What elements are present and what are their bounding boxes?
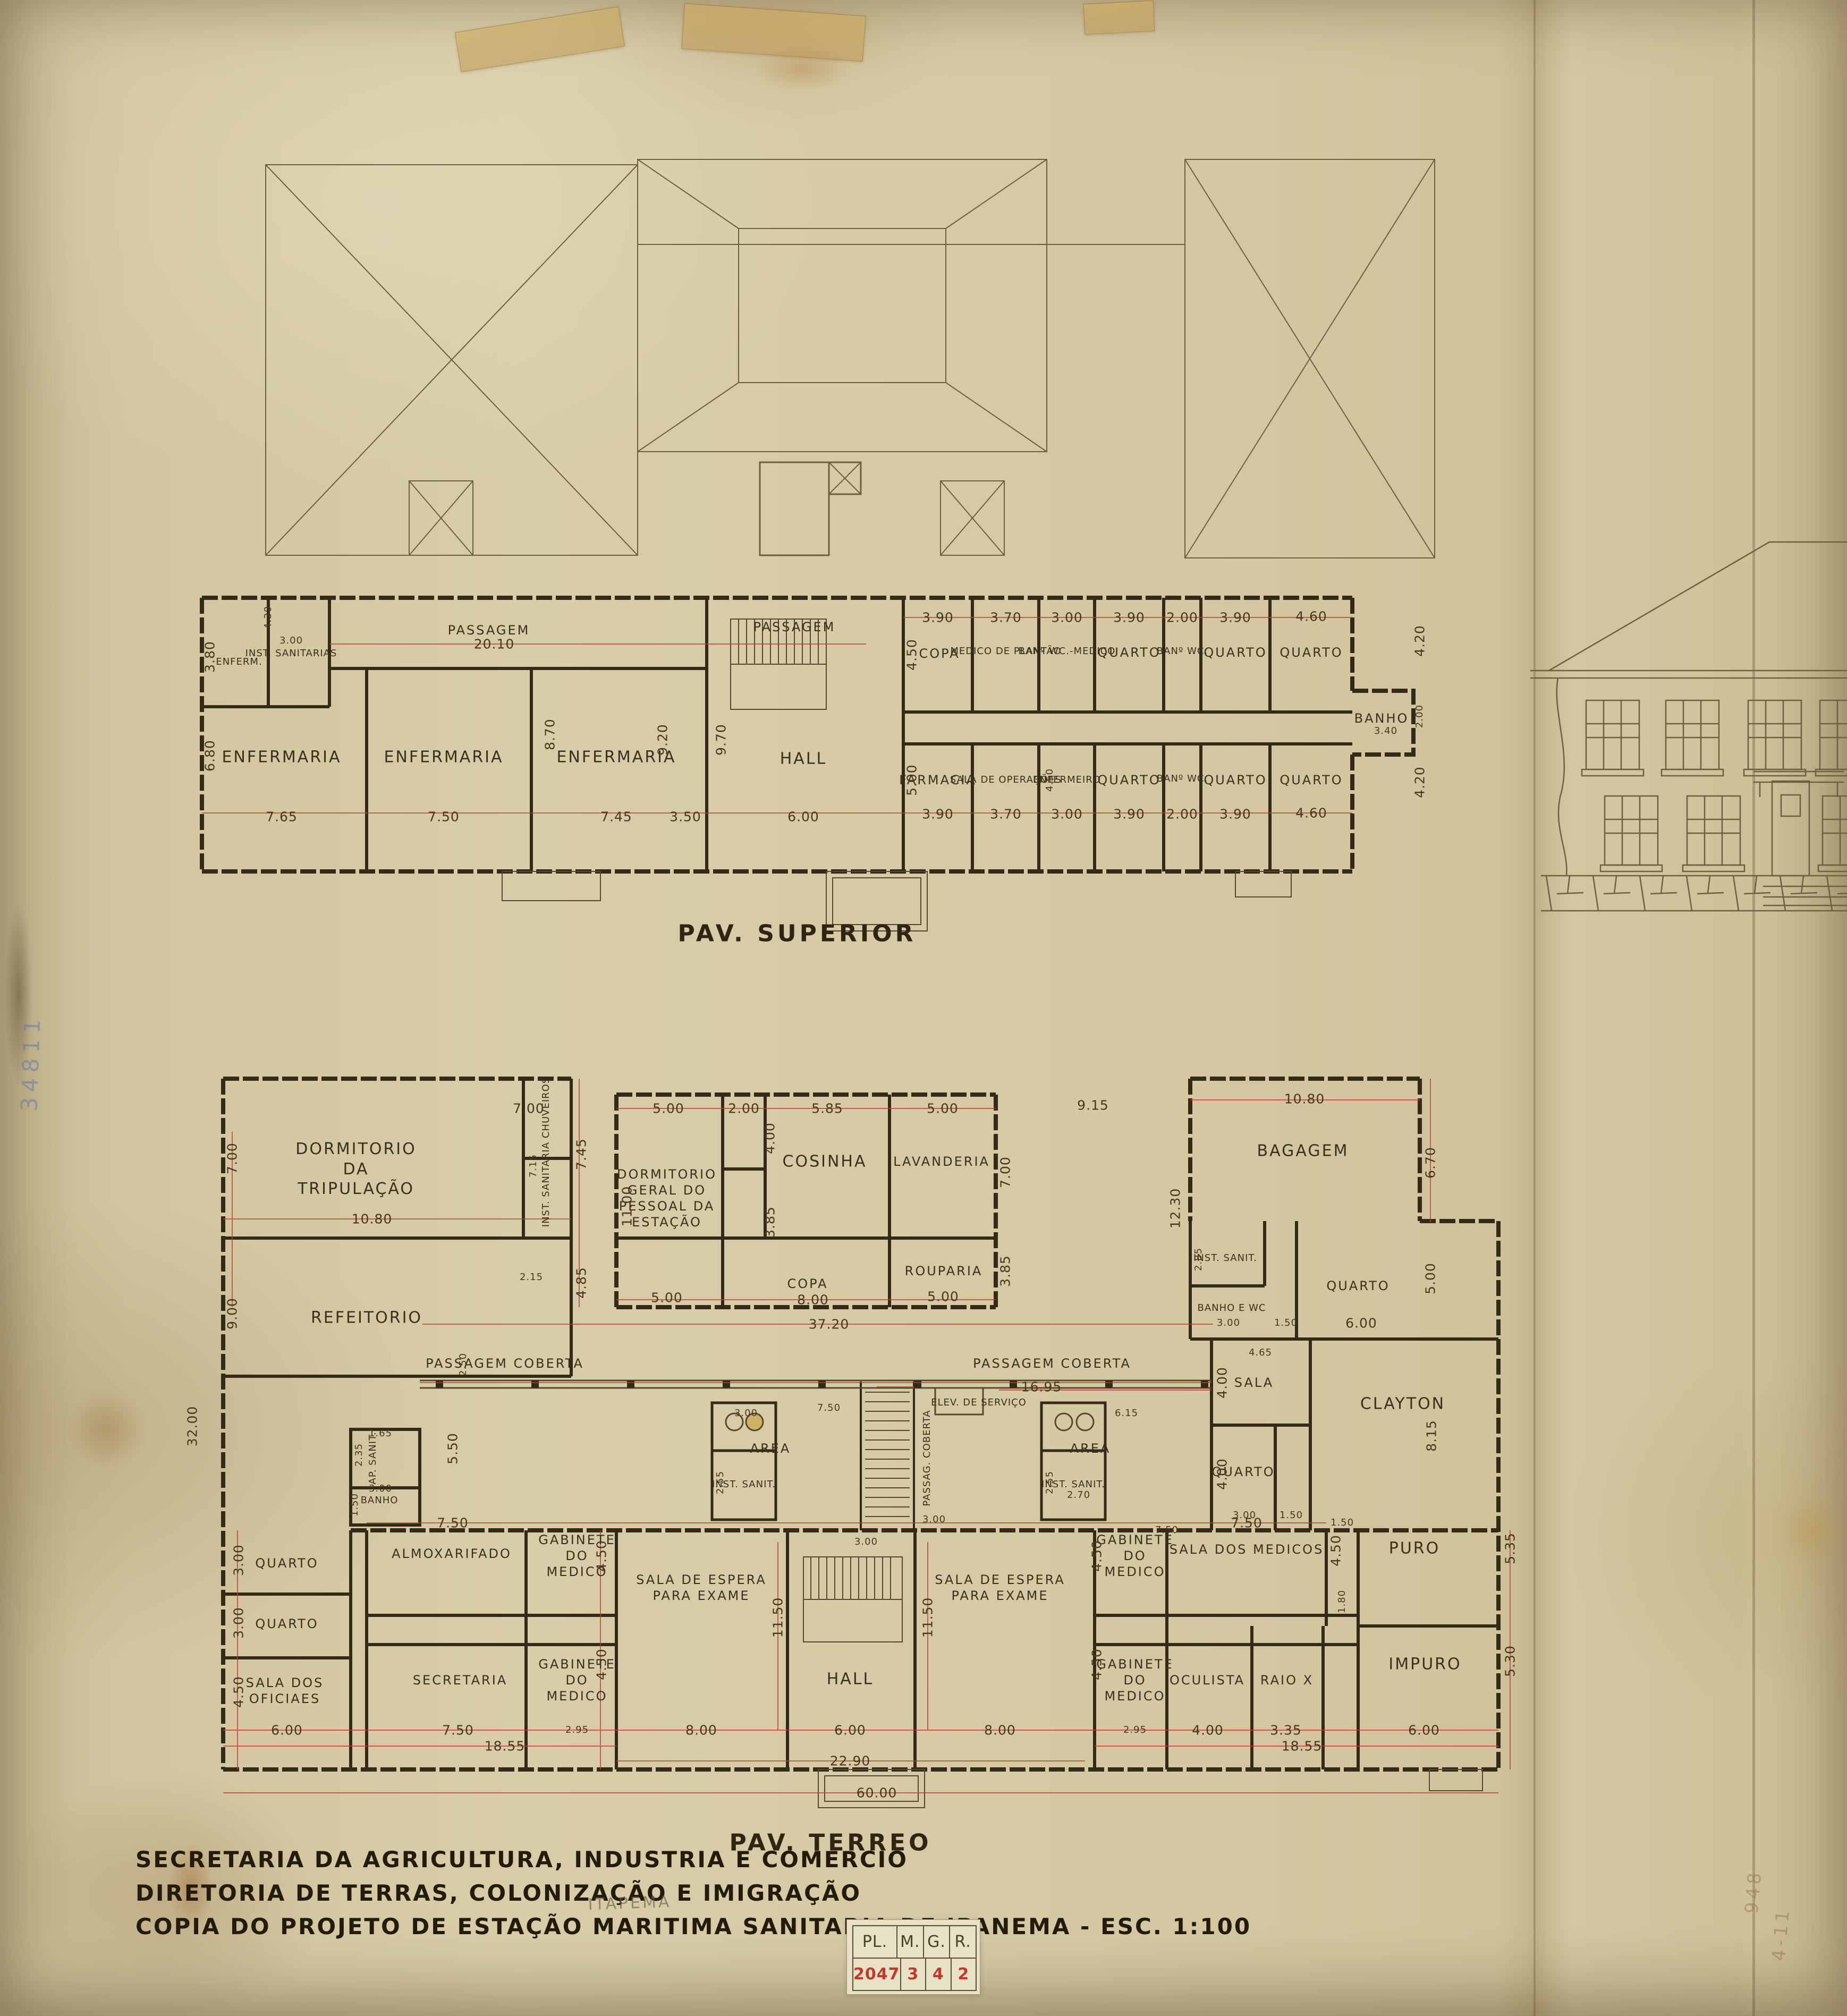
dim-label: 4.00 [761, 1122, 778, 1154]
room-label: QUARTO [255, 1555, 318, 1571]
stamp-value-r: 2 [952, 1959, 976, 1990]
room-label: IMPURO [1388, 1654, 1461, 1674]
room-label: LAVANDERIA [893, 1154, 990, 1170]
dim-label: 4.00 [1214, 1458, 1230, 1490]
room-label: AREA [1070, 1441, 1111, 1456]
dim-label: 11.50 [769, 1597, 786, 1638]
room-label: INST. SANITARIAS [245, 648, 337, 660]
title-line-2: DIRETORIA DE TERRAS, COLONIZAÇÃO E IMIGR… [135, 1880, 1251, 1906]
dim-label: 2.00 [728, 1100, 760, 1116]
dim-label: 7.15 [528, 1154, 540, 1178]
dim-label: 8.00 [685, 1722, 717, 1738]
dim-label: 4.20 [1411, 766, 1428, 798]
dim-label: 3.00 [279, 635, 303, 647]
stamp-header-g: G. [924, 1926, 951, 1958]
dim-label: 6.00 [1408, 1722, 1440, 1738]
dim-label: 4.50 [230, 1676, 247, 1708]
dim-label: 7.50 [442, 1722, 474, 1738]
title-block: SECRETARIA DA AGRICULTURA, INDUSTRIA E C… [135, 1846, 1251, 1947]
dim-label: 2.95 [1123, 1724, 1147, 1737]
stamp-value-m: 3 [901, 1959, 927, 1990]
dim-label: 9.00 [224, 1298, 240, 1329]
dim-label: 4.65 [1249, 1347, 1272, 1359]
room-label: SALA [1234, 1375, 1274, 1391]
room-label: AP. SANIT. [367, 1431, 379, 1484]
dim-label: 1.50 [1331, 1517, 1354, 1529]
room-label: ENFERMARIA [222, 747, 341, 767]
room-label: QUARTO [1204, 645, 1267, 660]
dim-label: 3.90 [1219, 609, 1251, 625]
pencil-note: ITAPEMA [588, 1893, 672, 1914]
room-label: SALA DOS MEDICOS [1170, 1541, 1324, 1557]
dim-label: 4.00 [1214, 1367, 1230, 1399]
margin-note: 34811 [16, 1013, 45, 1112]
dim-label: 8.15 [1423, 1420, 1439, 1452]
dim-label: 3.85 [997, 1255, 1013, 1287]
room-label: ENFERMEIRO [1033, 774, 1101, 786]
dim-label: 5.50 [444, 1433, 461, 1464]
dim-label: 3.90 [1113, 806, 1145, 822]
room-label: QUARTO [1280, 772, 1343, 788]
dim-label: 3.00 [369, 1483, 392, 1495]
room-label: BANHO E WC [1197, 1302, 1266, 1315]
room-label: BANº WC. [1157, 773, 1208, 785]
dim-label: 2.35 [353, 1443, 366, 1467]
stamp-header-m: M. [897, 1926, 924, 1958]
stamp-value-g: 4 [926, 1959, 952, 1990]
dim-label: 6.15 [1115, 1408, 1138, 1420]
dim-label: 3.90 [1219, 806, 1251, 822]
dim-label: 1.80 [1336, 1590, 1349, 1613]
upper-plan-caption: PAV. SUPERIOR [678, 920, 917, 947]
dim-label: 6.00 [1345, 1315, 1377, 1331]
dim-label: 3.00 [1051, 609, 1083, 625]
dim-label: 5.35 [1502, 1532, 1518, 1564]
dim-label: 6.00 [271, 1722, 303, 1738]
dim-label: 20.10 [474, 636, 515, 652]
dim-label: 11.00 [619, 1186, 635, 1227]
room-label: QUARTO [1204, 772, 1267, 788]
room-label: SALA DOS OFICIAES [246, 1675, 324, 1707]
dim-label: 4.60 [1295, 608, 1327, 624]
dim-label: 4.50 [593, 1648, 609, 1680]
dim-label: 3.40 [1374, 725, 1397, 738]
dim-label: 5.85 [811, 1100, 843, 1116]
dim-label: 2.50 [457, 1353, 470, 1376]
dim-label: 2.55 [715, 1471, 727, 1494]
dim-label: 3.90 [922, 609, 954, 625]
room-label: PURO [1389, 1538, 1441, 1558]
plan-linework [0, 0, 1847, 2016]
room-label: QUARTO [1097, 645, 1160, 660]
room-label: PASSAG. COBERTA [921, 1410, 934, 1506]
room-label: SECRETARIA [413, 1672, 507, 1688]
dim-label: 3.00 [230, 1607, 247, 1639]
dim-label: 5.00 [903, 764, 920, 796]
dim-label: 1.50 [1274, 1317, 1298, 1329]
dim-label: 3.85 [761, 1206, 778, 1238]
stamp-header-pl: PL. [853, 1926, 897, 1958]
dim-label: 2.55 [1044, 1471, 1056, 1494]
dim-label: 7.00 [997, 1156, 1013, 1188]
dim-label: 4.50 [593, 1540, 609, 1572]
room-label: GABINETE DO MEDICO [1096, 1532, 1174, 1580]
dim-label: 3.70 [990, 806, 1022, 822]
dim-label: 7.00 [513, 1100, 545, 1116]
stamp-value-pl: 2047 [853, 1959, 901, 1990]
room-label: PASSAGEM COBERTA [426, 1356, 584, 1371]
dim-label: 4.50 [1327, 1535, 1344, 1566]
dim-label: 5.30 [1502, 1645, 1518, 1677]
room-label: ROUPARIA [905, 1263, 983, 1279]
room-label: COSINHA [783, 1151, 867, 1172]
dim-label: 2.15 [520, 1272, 543, 1284]
dim-label: 8.70 [541, 718, 558, 750]
dim-label: 5.00 [1422, 1263, 1438, 1294]
dim-label: 4.50 [1088, 1540, 1105, 1572]
dim-label: 4.50 [1088, 1648, 1105, 1680]
room-label: RAIO X [1260, 1672, 1314, 1688]
dim-label: 5.00 [927, 1288, 959, 1305]
dim-label: 12.30 [1167, 1188, 1183, 1229]
dim-label: 7.45 [600, 808, 632, 825]
dim-label: 7.65 [266, 808, 298, 825]
title-line-1: SECRETARIA DA AGRICULTURA, INDUSTRIA E C… [135, 1846, 1251, 1873]
room-label: QUARTO [1326, 1278, 1390, 1294]
facade-elevation [1530, 542, 1847, 911]
dim-label: 7.50 [1231, 1514, 1263, 1531]
dim-label: 3.00 [922, 1514, 946, 1526]
dim-label: 3.80 [201, 641, 218, 673]
dim-label: 3.00 [734, 1408, 758, 1420]
dim-label: 5.00 [927, 1100, 959, 1116]
dim-label: 9.15 [1077, 1097, 1109, 1113]
dim-label: 18.55 [485, 1738, 526, 1754]
dim-label: 2.00 [1414, 705, 1426, 728]
dim-label: 7.50 [437, 1514, 469, 1531]
stamp-header-r: R. [950, 1926, 976, 1958]
dim-label: 32.00 [184, 1406, 200, 1447]
room-label: AREA [750, 1441, 791, 1456]
dim-label: 5.00 [651, 1289, 683, 1306]
dim-label: 37.20 [809, 1316, 850, 1332]
dim-label: 3.00 [1051, 806, 1083, 822]
dim-label: 7.50 [428, 808, 460, 825]
dim-label: 4.60 [1295, 804, 1327, 821]
dim-label: 3.90 [1113, 609, 1145, 625]
dim-label: 2.95 [565, 1724, 589, 1737]
registry-stamp: PL. M. G. R. 2047 3 4 2 [846, 1919, 980, 1995]
dim-label: 2.00 [1166, 806, 1198, 822]
room-label: ELEV. DE SERVIÇO [931, 1397, 1027, 1409]
dim-label: 4.20 [1411, 625, 1428, 657]
dim-label: 3.00 [1217, 1317, 1240, 1329]
dim-label: 10.80 [352, 1210, 393, 1227]
dim-label: 2.00 [1166, 609, 1198, 625]
dim-label: 3.50 [670, 808, 701, 825]
dim-label: 4.50 [1044, 768, 1056, 792]
room-label: COPA [787, 1276, 828, 1292]
dim-label: 7.50 [817, 1402, 841, 1414]
dim-label: 5.00 [653, 1100, 684, 1116]
room-label: QUARTO [1097, 772, 1160, 788]
room-label: ENFERMARIA [384, 747, 503, 767]
room-label: BANHO [1354, 710, 1409, 726]
dim-label: 1.50 [349, 1493, 361, 1517]
room-label: BANº WC. [1157, 646, 1208, 658]
room-label: SALA DE ESPERA PARA EXAME [935, 1572, 1065, 1604]
dim-label: 8.00 [797, 1291, 829, 1308]
dim-label: 7.00 [224, 1142, 240, 1174]
room-label: BANHO [361, 1495, 399, 1507]
dim-label: 3.00 [230, 1544, 247, 1576]
room-label: REFEITORIO [311, 1308, 422, 1328]
dim-label: 2.70 [1067, 1489, 1090, 1502]
room-label: SALA DE ESPERA PARA EXAME [636, 1572, 767, 1604]
room-label: HALL [780, 749, 827, 769]
dim-label: 60.00 [857, 1784, 897, 1801]
room-label: QUARTO [1280, 645, 1343, 660]
dim-label: 6.70 [1422, 1147, 1438, 1179]
dim-label: 9.70 [713, 724, 729, 756]
dim-label: 4.00 [1192, 1722, 1224, 1738]
dim-label: 1.50 [1280, 1510, 1303, 1522]
drawing-sheet: PASSAGEMPASSAGEMENFERM.INST. SANITARIASE… [0, 0, 1847, 2016]
roof-plan [266, 159, 1435, 558]
room-label: PASSAGEM [753, 619, 836, 635]
room-label: HALL [827, 1669, 874, 1689]
dim-label: 18.55 [1282, 1738, 1323, 1754]
dim-label: 3.90 [922, 806, 954, 822]
room-label: OCULISTA [1170, 1672, 1245, 1688]
dim-label: 11.50 [919, 1597, 936, 1638]
dim-label: 3.35 [1270, 1722, 1302, 1738]
room-label: CLAYTON [1360, 1394, 1445, 1414]
room-label: GABINETE DO MEDICO [1096, 1656, 1174, 1704]
room-label: INST. SANITARIA CHUVEIROS [540, 1077, 553, 1227]
room-label: BAGAGEM [1257, 1141, 1349, 1161]
room-label: ALMOXARIFADO [392, 1546, 512, 1562]
dim-label: 4.85 [573, 1267, 589, 1299]
room-label: DORMITORIO DA TRIPULAÇÃO [295, 1139, 417, 1199]
dim-label: 3.70 [990, 609, 1022, 625]
dim-label: 7.45 [573, 1138, 589, 1170]
dim-label: 7.50 [1155, 1524, 1179, 1537]
dim-label: 6.00 [834, 1722, 866, 1738]
corner-note: 948 [1741, 1869, 1766, 1915]
dim-label: 4.50 [903, 639, 920, 671]
dim-label: 8.00 [984, 1722, 1016, 1738]
dim-label: 22.90 [830, 1752, 871, 1769]
dim-label: 6.00 [787, 808, 819, 825]
dim-label: 4.30 [262, 606, 275, 629]
dim-label: 16.95 [1021, 1378, 1062, 1395]
title-line-3: COPIA DO PROJETO DE ESTAÇÃO MARITIMA SAN… [135, 1913, 1251, 1939]
dim-label: 3.00 [854, 1536, 878, 1548]
dim-label: 1.65 [369, 1428, 392, 1440]
dim-label: 2.85 [1193, 1248, 1205, 1271]
room-label: QUARTO [255, 1616, 318, 1632]
room-label: PASSAGEM COBERTA [973, 1356, 1131, 1371]
dim-label: 6.80 [201, 740, 218, 772]
dim-label: 9.20 [654, 724, 671, 756]
dim-label: 10.80 [1284, 1090, 1325, 1107]
